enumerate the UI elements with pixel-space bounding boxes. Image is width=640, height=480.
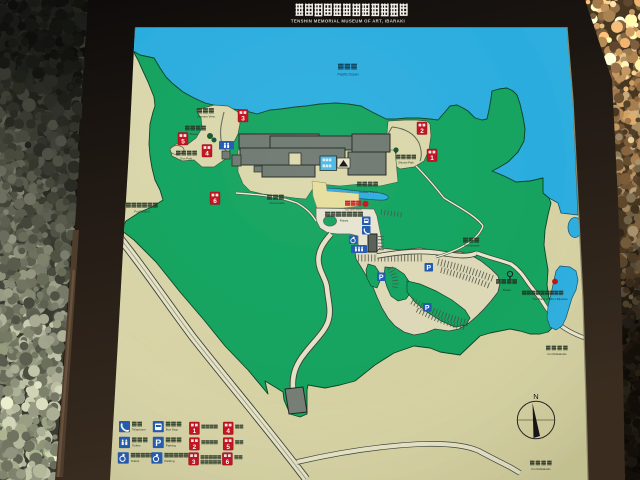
svg-text:TENSHIN MEMORIAL MUSEUM OF ART: TENSHIN MEMORIAL MUSEUM OF ART, IBARAKI <box>291 19 405 24</box>
